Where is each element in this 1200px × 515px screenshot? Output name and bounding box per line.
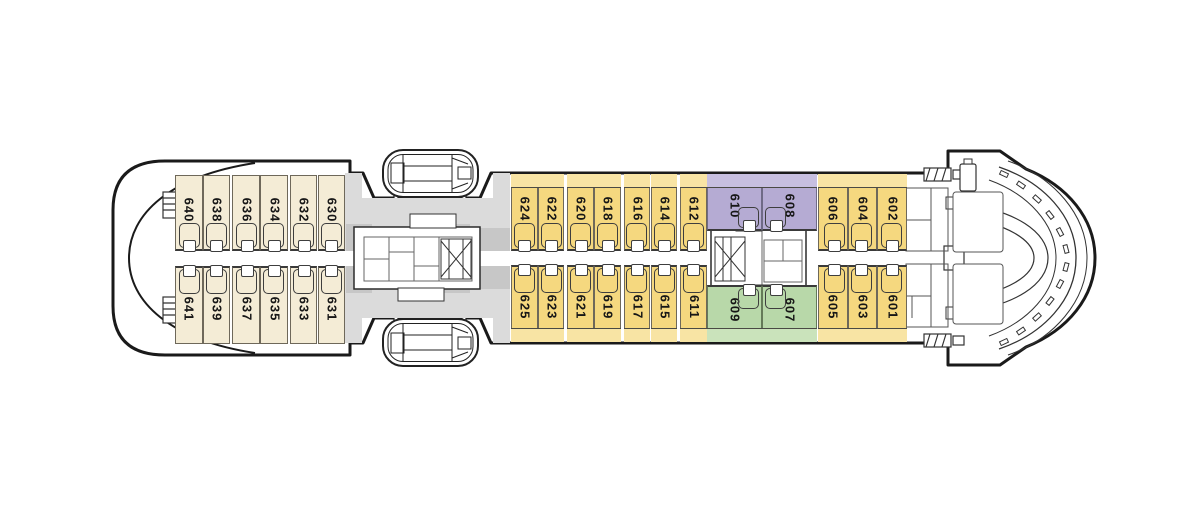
bed-icon xyxy=(738,288,759,309)
cabin-640[interactable]: 640 xyxy=(175,175,203,251)
stairs-icon xyxy=(441,239,471,279)
balcony-strip xyxy=(707,174,762,188)
cabin-616[interactable]: 616 xyxy=(624,174,651,251)
balcony-strip xyxy=(538,328,565,342)
bed-icon xyxy=(765,288,786,309)
cabin-row-suites-top: 610608 xyxy=(707,174,817,231)
balcony-strip xyxy=(818,328,848,342)
cabin-621[interactable]: 621 xyxy=(567,265,594,342)
bed-icon xyxy=(179,269,200,294)
stairs-icon xyxy=(715,237,745,281)
cabin-602[interactable]: 602 xyxy=(877,174,907,251)
bed-icon xyxy=(683,223,704,248)
bed-icon xyxy=(597,268,618,293)
cabin-row-stern-top: 640638636634632630 xyxy=(175,175,347,251)
cabin-number: 622 xyxy=(544,197,558,222)
forward-lobby xyxy=(711,223,806,293)
cabin-634[interactable]: 634 xyxy=(260,175,288,251)
cabin-row-suites-bottom: 609607 xyxy=(707,285,817,342)
cabin-number: 640 xyxy=(182,198,196,223)
bed-icon xyxy=(263,223,284,248)
cabin-611[interactable]: 611 xyxy=(680,265,707,342)
cabin-number: 611 xyxy=(687,295,701,319)
balcony-strip xyxy=(538,174,565,188)
cabin-635[interactable]: 635 xyxy=(260,266,288,344)
cabin-622[interactable]: 622 xyxy=(538,174,565,251)
bed-icon xyxy=(824,223,845,248)
bed-icon xyxy=(765,207,786,228)
cabin-number: 634 xyxy=(267,198,281,223)
cabin-number: 621 xyxy=(574,295,588,320)
deck-plan: 640638636634632630 641639637635633631 62… xyxy=(0,0,1200,515)
cabin-number: 631 xyxy=(324,297,338,322)
cabin-number: 619 xyxy=(600,295,614,320)
bed-icon xyxy=(570,223,591,248)
balcony-strip xyxy=(848,174,878,188)
cabin-number: 625 xyxy=(517,295,531,320)
balcony-strip xyxy=(818,174,848,188)
bed-icon xyxy=(321,223,342,248)
cabin-601[interactable]: 601 xyxy=(877,265,907,342)
cabin-number: 616 xyxy=(630,197,644,222)
cabin-number: 637 xyxy=(239,297,253,322)
cabin-631[interactable]: 631 xyxy=(318,266,346,344)
cabin-637[interactable]: 637 xyxy=(232,266,260,344)
lobby-details xyxy=(0,0,1200,515)
cabin-632[interactable]: 632 xyxy=(290,175,318,251)
bed-icon xyxy=(824,268,845,293)
bed-icon xyxy=(597,223,618,248)
bed-icon xyxy=(514,268,535,293)
cabin-row-stern-bottom: 641639637635633631 xyxy=(175,266,347,344)
bed-icon xyxy=(654,268,675,293)
cabin-number: 633 xyxy=(297,297,311,322)
bed-icon xyxy=(851,268,872,293)
cabin-row-forward-bottom: 605603601 xyxy=(818,265,908,342)
balcony-strip xyxy=(707,328,762,342)
cabin-number: 604 xyxy=(856,197,870,222)
balcony-strip xyxy=(567,328,594,342)
cabin-number: 641 xyxy=(182,297,196,322)
cabin-row-forward-top: 606604602 xyxy=(818,174,908,251)
bed-icon xyxy=(206,223,227,248)
bed-icon xyxy=(541,223,562,248)
cabin-number: 620 xyxy=(574,197,588,222)
bed-icon xyxy=(881,223,902,248)
balcony-strip xyxy=(511,174,538,188)
bed-icon xyxy=(236,223,257,248)
balcony-strip xyxy=(877,328,907,342)
balcony-strip xyxy=(511,328,538,342)
cabin-641[interactable]: 641 xyxy=(175,266,203,344)
cabin-number: 615 xyxy=(657,295,671,320)
cabin-605[interactable]: 605 xyxy=(818,265,848,342)
cabin-number: 603 xyxy=(856,295,870,320)
cabin-624[interactable]: 624 xyxy=(511,174,538,251)
bed-icon xyxy=(626,268,647,293)
cabin-row-midship-top: 624622620618616614612 xyxy=(511,174,707,251)
bed-icon xyxy=(541,268,562,293)
bed-icon xyxy=(293,223,314,248)
bed-icon xyxy=(293,269,314,294)
cabin-number: 612 xyxy=(687,197,701,222)
cabin-620[interactable]: 620 xyxy=(567,174,594,251)
cabin-619[interactable]: 619 xyxy=(594,265,621,342)
cabin-number: 601 xyxy=(885,295,899,320)
balcony-strip xyxy=(624,328,651,342)
bed-icon xyxy=(626,223,647,248)
balcony-strip xyxy=(877,174,907,188)
cabin-number: 630 xyxy=(324,198,338,223)
cabin-number: 617 xyxy=(630,295,644,320)
balcony-strip xyxy=(651,328,678,342)
cabin-607[interactable]: 607 xyxy=(762,285,817,342)
cabin-636[interactable]: 636 xyxy=(232,175,260,251)
balcony-strip xyxy=(848,328,878,342)
balcony-strip xyxy=(594,174,621,188)
balcony-strip xyxy=(624,174,651,188)
cabin-number: 618 xyxy=(600,197,614,222)
cabin-number: 635 xyxy=(267,297,281,322)
bed-icon xyxy=(654,223,675,248)
bed-icon xyxy=(179,223,200,248)
bed-icon xyxy=(881,268,902,293)
cabin-639[interactable]: 639 xyxy=(203,266,231,344)
cabin-number: 639 xyxy=(210,297,224,322)
cabin-number: 636 xyxy=(239,198,253,223)
midship-lobby xyxy=(354,214,480,301)
cabin-623[interactable]: 623 xyxy=(538,265,565,342)
cabin-number: 624 xyxy=(517,197,531,222)
balcony-strip xyxy=(651,174,678,188)
bed-icon xyxy=(738,207,759,228)
cabin-615[interactable]: 615 xyxy=(651,265,678,342)
cabin-630[interactable]: 630 xyxy=(318,175,346,251)
balcony-strip xyxy=(762,174,817,188)
bed-icon xyxy=(514,223,535,248)
cabin-number: 605 xyxy=(826,295,840,320)
cabin-number: 632 xyxy=(297,198,311,223)
balcony-strip xyxy=(567,174,594,188)
cabin-number: 606 xyxy=(826,197,840,222)
cabin-614[interactable]: 614 xyxy=(651,174,678,251)
cabin-603[interactable]: 603 xyxy=(848,265,878,342)
cabin-617[interactable]: 617 xyxy=(624,265,651,342)
cabin-633[interactable]: 633 xyxy=(290,266,318,344)
bed-icon xyxy=(570,268,591,293)
balcony-strip xyxy=(680,174,707,188)
cabin-number: 623 xyxy=(544,295,558,320)
cabin-625[interactable]: 625 xyxy=(511,265,538,342)
balcony-strip xyxy=(680,328,707,342)
cabin-638[interactable]: 638 xyxy=(203,175,231,251)
balcony-strip xyxy=(594,328,621,342)
cabin-row-midship-bottom: 625623621619617615611 xyxy=(511,265,707,342)
cabin-number: 638 xyxy=(210,198,224,223)
cabin-number: 602 xyxy=(885,197,899,222)
cabin-610[interactable]: 610 xyxy=(707,174,762,231)
cabin-number: 614 xyxy=(657,197,671,222)
bed-icon xyxy=(683,268,704,293)
cabin-618[interactable]: 618 xyxy=(594,174,621,251)
bed-icon xyxy=(263,269,284,294)
balcony-strip xyxy=(762,328,817,342)
bed-icon xyxy=(851,223,872,248)
bed-icon xyxy=(206,269,227,294)
cabin-612[interactable]: 612 xyxy=(680,174,707,251)
cabin-606[interactable]: 606 xyxy=(818,174,848,251)
bed-icon xyxy=(236,269,257,294)
bed-icon xyxy=(321,269,342,294)
cabin-609[interactable]: 609 xyxy=(707,285,762,342)
cabin-604[interactable]: 604 xyxy=(848,174,878,251)
cabin-608[interactable]: 608 xyxy=(762,174,817,231)
